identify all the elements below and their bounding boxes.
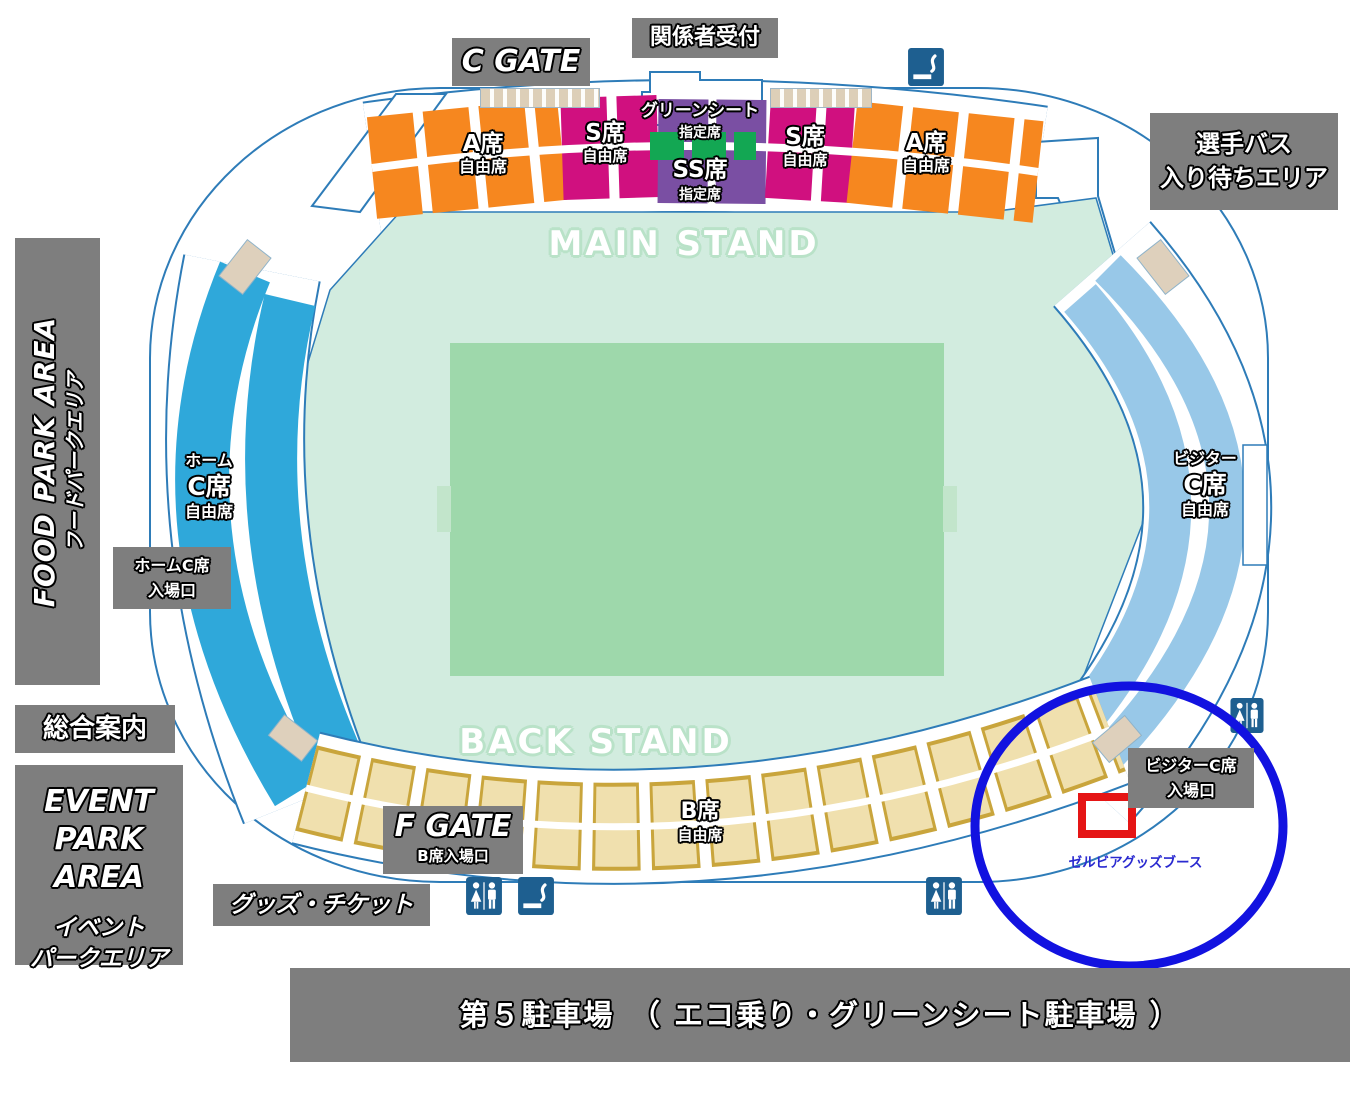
food-park-label: FOOD PARK AREA フードパークエリア: [15, 238, 100, 685]
visitor-c-entrance-line1: ビジターC席: [1128, 753, 1254, 778]
smoking-area-icon: [518, 877, 554, 915]
toilet-icon: [926, 877, 962, 915]
zelvia-goods-booth-text: ゼルビアグッズブース: [1048, 851, 1223, 871]
goal-right: [943, 486, 957, 532]
visitor-c-entrance-label: ビジターC席 入場口: [1128, 748, 1254, 808]
home-c-entrance-line2: 入場口: [113, 578, 231, 603]
seat-label-s-left: S席 自由席: [550, 120, 660, 166]
home-c-entrance-line1: ホームC席: [113, 553, 231, 578]
visitor-c-type: 自由席: [1160, 500, 1250, 520]
stair-stripe: [770, 88, 872, 108]
seat-label-b: B席 自由席: [655, 799, 745, 845]
event-park-ja1: イベント: [15, 913, 183, 944]
s-left-name: S席: [550, 120, 660, 146]
player-bus-line1: 選手バス: [1150, 127, 1338, 161]
visitor-c-entrance-line2: 入場口: [1128, 778, 1254, 803]
c-gate-label: C GATE: [452, 38, 590, 86]
seat-label-a-left: A席 自由席: [428, 131, 538, 177]
stair-stripe: [480, 88, 600, 108]
food-park-en: FOOD PARK AREA: [28, 238, 62, 685]
toilet-icon: [466, 877, 502, 915]
info-desk-label: 総合案内: [15, 705, 175, 753]
event-park-label: EVENT PARK AREA イベント パークエリア: [15, 765, 183, 965]
s-right-name: S席: [750, 124, 860, 150]
home-c-name: C席: [164, 472, 254, 502]
goods-ticket-label: グッズ・チケット: [213, 884, 430, 926]
c-gate-text: C GATE: [462, 44, 580, 79]
parking-text: 第５駐車場 （ エコ乗り・グリーンシート駐車場 ）: [459, 998, 1180, 1032]
pitch: [450, 343, 944, 676]
stadium-map: C GATE 関係者受付 選手バス 入り待ちエリア FOOD PARK AREA…: [0, 0, 1350, 1100]
seat-label-visitor-c: ビジター C席 自由席: [1160, 448, 1250, 520]
a-left-type: 自由席: [428, 157, 538, 177]
s-right-type: 自由席: [750, 150, 860, 170]
visitor-c-name: C席: [1160, 470, 1250, 500]
home-c-prefix: ホーム: [164, 450, 254, 472]
ss-type: 指定席: [655, 186, 745, 204]
info-desk-text: 総合案内: [43, 714, 147, 744]
ss-name: SS席: [645, 157, 755, 184]
parking-label: 第５駐車場 （ エコ乗り・グリーンシート駐車場 ）: [290, 968, 1350, 1062]
event-park-en2: PARK AREA: [15, 821, 183, 897]
a-left-name: A席: [428, 131, 538, 157]
goods-ticket-text: グッズ・チケット: [230, 892, 414, 918]
player-bus-label: 選手バス 入り待ちエリア: [1150, 113, 1338, 210]
b-type: 自由席: [655, 825, 745, 845]
seat-label-a-right: A席 自由席: [871, 130, 981, 176]
b-name: B席: [655, 799, 745, 825]
seat-label-s-right: S席 自由席: [750, 124, 860, 170]
event-park-ja2: パークエリア: [15, 944, 183, 975]
event-park-en1: EVENT: [15, 783, 183, 821]
seat-label-home-c: ホーム C席 自由席: [164, 450, 254, 522]
f-gate-label: F GATE B席入場口: [383, 806, 523, 874]
reception-text: 関係者受付: [650, 25, 760, 50]
player-bus-line2: 入り待ちエリア: [1150, 161, 1338, 195]
visitor-c-prefix: ビジター: [1160, 448, 1250, 470]
f-gate-sub-text: B席入場口: [383, 844, 523, 868]
goal-left: [437, 486, 451, 532]
s-left-type: 自由席: [550, 146, 660, 166]
back-stand-name: BACK STAND: [446, 722, 746, 762]
food-park-ja: フードパークエリア: [62, 238, 88, 685]
green-sheet-name: グリーンシート: [625, 100, 775, 122]
a-right-name: A席: [871, 130, 981, 156]
green-sheet-type: 指定席: [655, 124, 745, 142]
f-gate-text: F GATE: [383, 810, 523, 844]
home-c-type: 自由席: [164, 502, 254, 522]
main-stand-name: MAIN STAND: [534, 224, 834, 264]
reception-label: 関係者受付: [632, 18, 778, 58]
a-right-type: 自由席: [871, 156, 981, 176]
smoking-area-icon: [908, 48, 944, 86]
home-c-entrance-label: ホームC席 入場口: [113, 547, 231, 609]
